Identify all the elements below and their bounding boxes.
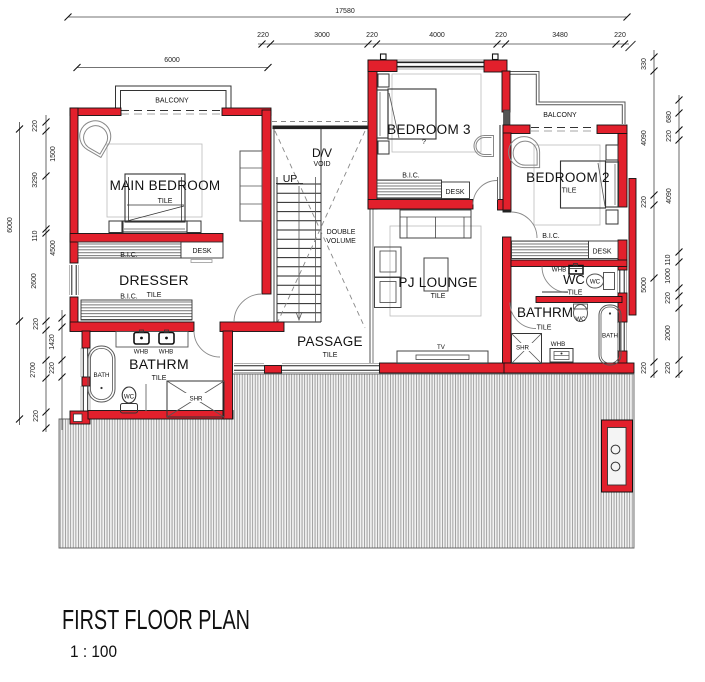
svg-text:TILE: TILE (431, 293, 446, 300)
svg-text:220: 220 (257, 32, 269, 39)
svg-text:3480: 3480 (552, 32, 568, 39)
svg-text:4090: 4090 (641, 130, 648, 146)
svg-text:2700: 2700 (30, 362, 37, 378)
svg-text:1000: 1000 (665, 268, 672, 284)
svg-text:2600: 2600 (31, 273, 38, 289)
svg-text:220: 220 (49, 362, 56, 374)
svg-text:SHR: SHR (189, 396, 203, 403)
svg-text:220: 220 (665, 292, 672, 304)
svg-text:220: 220 (33, 318, 40, 330)
svg-text:PJ LOUNGE: PJ LOUNGE (398, 275, 477, 290)
svg-text:DESK: DESK (445, 189, 464, 196)
svg-text:TILE: TILE (323, 352, 338, 359)
svg-text:BEDROOM 2: BEDROOM 2 (526, 170, 610, 185)
svg-text:BATHRM: BATHRM (129, 356, 189, 372)
svg-text:DESK: DESK (592, 249, 611, 256)
svg-text:4000: 4000 (429, 32, 445, 39)
svg-text:BALCONY: BALCONY (155, 98, 189, 105)
svg-text:D/V: D/V (312, 146, 332, 160)
svg-text:B.I.C.: B.I.C. (542, 233, 560, 240)
svg-text:B.I.C.: B.I.C. (402, 173, 420, 180)
svg-text:220: 220 (666, 130, 673, 142)
svg-text:TILE: TILE (537, 325, 552, 332)
svg-text:TV: TV (437, 344, 446, 351)
svg-text:WC: WC (590, 279, 601, 286)
svg-text:BEDROOM 3: BEDROOM 3 (387, 122, 471, 137)
svg-text:4090: 4090 (666, 188, 673, 204)
svg-text:TILE: TILE (562, 188, 577, 195)
svg-text:PASSAGE: PASSAGE (297, 334, 363, 349)
svg-text:VOID: VOID (313, 161, 330, 168)
svg-text:BATHRM: BATHRM (517, 305, 573, 320)
svg-text:220: 220 (33, 410, 40, 422)
svg-text:WC: WC (563, 272, 585, 287)
svg-text:WC: WC (575, 316, 586, 323)
svg-text:WC: WC (124, 394, 135, 401)
svg-text:FIRST FLOOR PLAN: FIRST FLOOR PLAN (62, 604, 250, 635)
svg-text:MAIN BEDROOM: MAIN BEDROOM (110, 178, 221, 193)
svg-text:TILE: TILE (568, 290, 583, 297)
svg-text:3290: 3290 (32, 172, 39, 188)
svg-text:1 : 100: 1 : 100 (70, 643, 117, 661)
svg-text:1500: 1500 (50, 146, 57, 162)
svg-text:BATH: BATH (602, 333, 618, 340)
svg-text:1420: 1420 (49, 334, 56, 350)
svg-text:DESK: DESK (192, 248, 211, 255)
svg-text:WHB: WHB (551, 341, 565, 348)
svg-text:220: 220 (495, 32, 507, 39)
svg-text:B.I.C.: B.I.C. (120, 252, 138, 259)
svg-text:680: 680 (666, 111, 673, 123)
svg-text:110: 110 (665, 254, 672, 265)
svg-text:TILE: TILE (158, 198, 173, 205)
svg-text:17580: 17580 (335, 8, 355, 15)
svg-text:110: 110 (32, 230, 39, 241)
svg-text:220: 220 (665, 362, 672, 374)
svg-text:6000: 6000 (7, 217, 14, 233)
svg-text:DRESSER: DRESSER (119, 272, 189, 288)
svg-text:B.I.C.: B.I.C. (120, 294, 138, 301)
svg-text:5000: 5000 (641, 277, 648, 293)
svg-text:WHB: WHB (159, 349, 173, 356)
svg-text:BATH: BATH (93, 372, 109, 379)
svg-text:220: 220 (366, 32, 378, 39)
svg-text:TILE: TILE (147, 292, 162, 299)
svg-text:3000: 3000 (314, 32, 330, 39)
svg-text:220: 220 (641, 362, 648, 374)
svg-text:330: 330 (641, 58, 648, 70)
svg-text:220: 220 (32, 120, 39, 132)
svg-text:220: 220 (614, 32, 626, 39)
svg-text:?: ? (422, 139, 426, 146)
svg-text:6000: 6000 (164, 57, 180, 64)
svg-text:4500: 4500 (50, 240, 57, 256)
svg-text:VOLUME: VOLUME (326, 238, 356, 245)
svg-text:BALCONY: BALCONY (543, 112, 577, 119)
svg-text:TILE: TILE (152, 375, 167, 382)
svg-text:220: 220 (641, 196, 648, 208)
svg-text:DOUBLE: DOUBLE (327, 229, 356, 236)
svg-text:WHB: WHB (134, 349, 148, 356)
svg-text:2000: 2000 (665, 325, 672, 341)
svg-text:SHR: SHR (516, 345, 530, 352)
